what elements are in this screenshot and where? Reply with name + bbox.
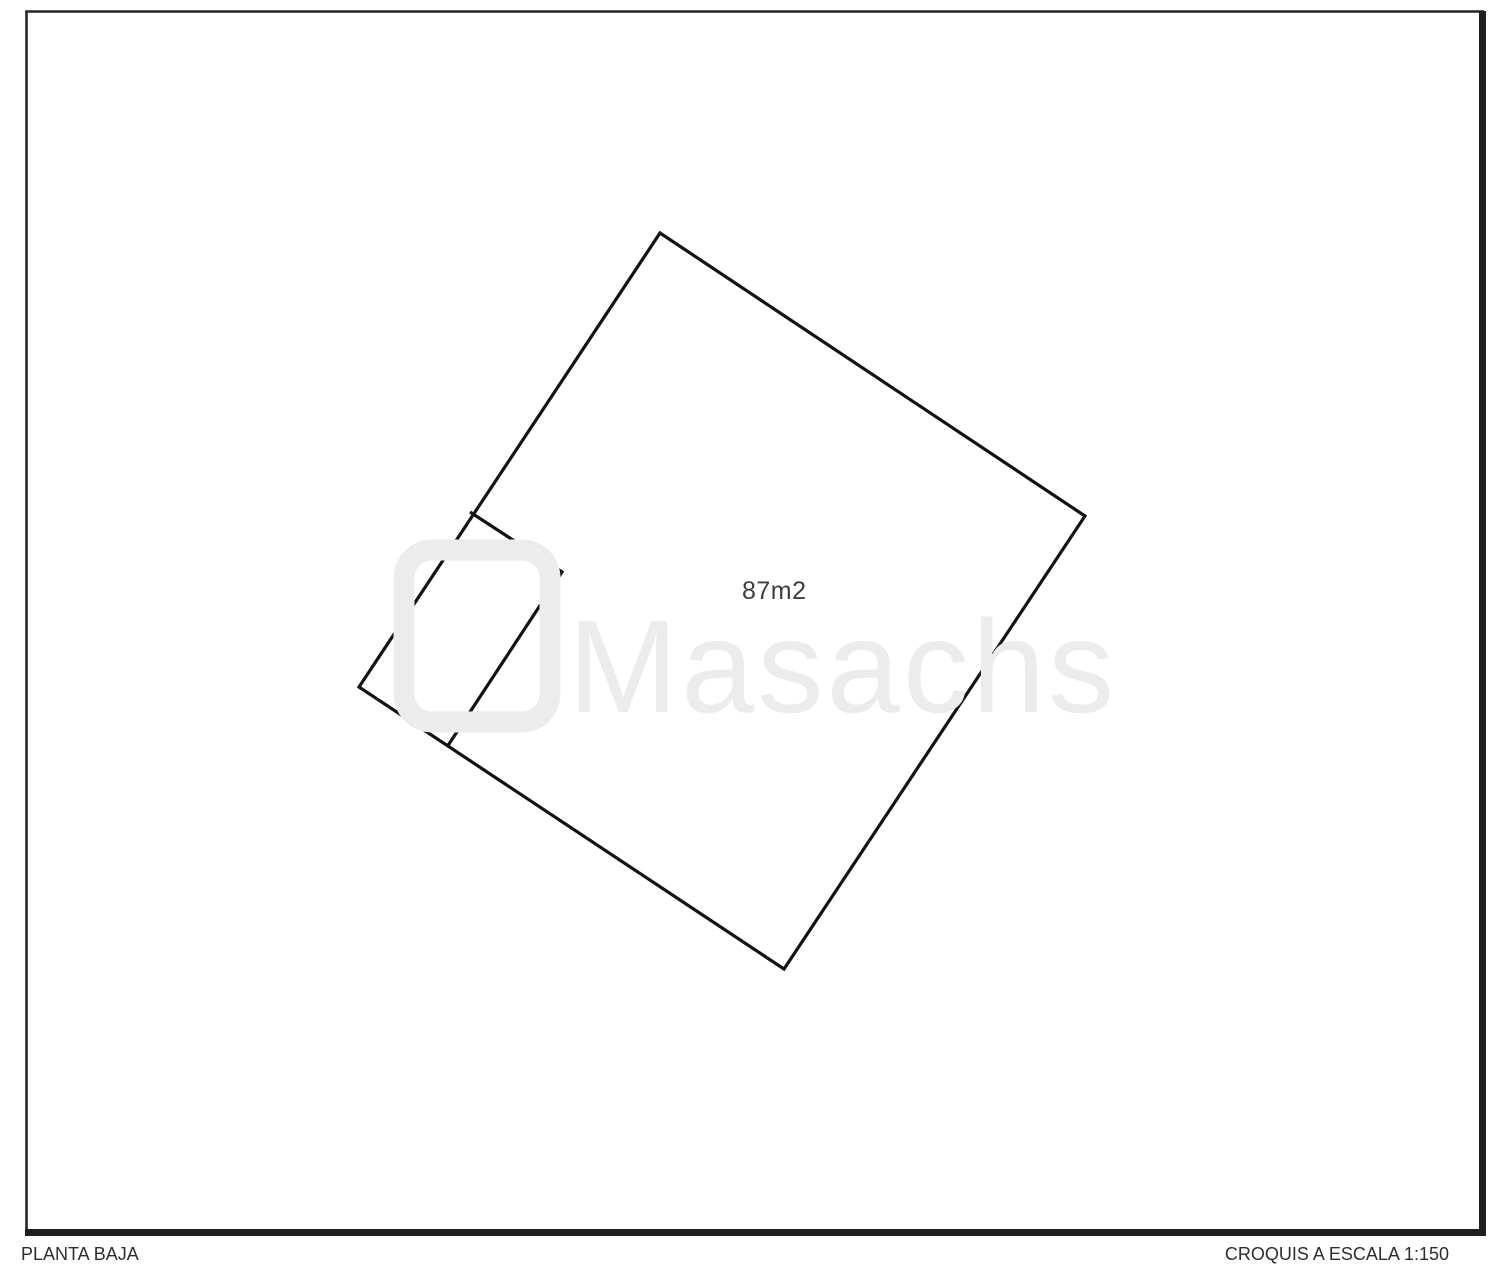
watermark-text: Masachs (568, 593, 1117, 740)
footer-floor-label: PLANTA BAJA (21, 1244, 139, 1264)
croquis-page: Masachs 87m2 PLANTA BAJA CROQUIS A ESCAL… (0, 0, 1500, 1274)
room-area-label: 87m2 (742, 577, 807, 605)
floorplan-canvas: Masachs 87m2 PLANTA BAJA CROQUIS A ESCAL… (0, 0, 1500, 1274)
footer-scale-label: CROQUIS A ESCALA 1:150 (1225, 1244, 1449, 1264)
